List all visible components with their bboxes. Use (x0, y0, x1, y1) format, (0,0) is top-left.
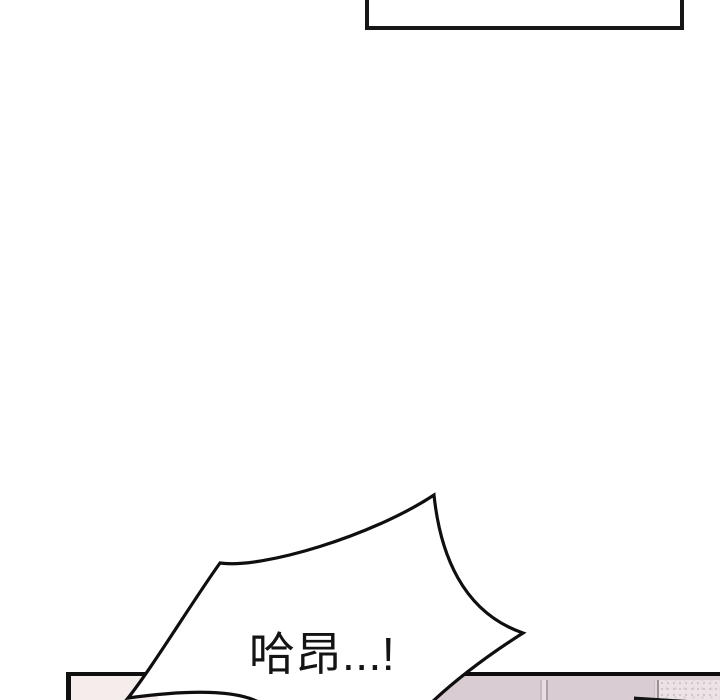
left-wall-panel (66, 672, 158, 700)
tile-grout-line (540, 680, 549, 700)
speech-bubble (0, 0, 720, 700)
frosted-glass-panel (659, 680, 720, 700)
top-panel-frame (365, 0, 684, 30)
tile-wall-panel (430, 672, 720, 700)
page-canvas: 哈昂...! (0, 0, 720, 700)
speech-bubble-text: 哈昂...! (249, 631, 395, 677)
